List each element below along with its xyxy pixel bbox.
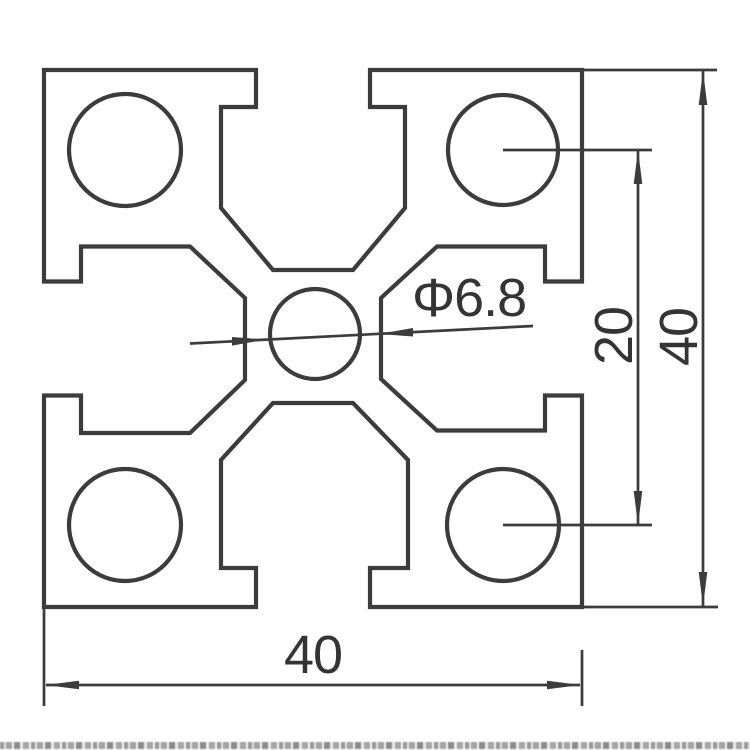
center-bore-hole (270, 289, 360, 379)
arrowhead-width-left (45, 681, 79, 690)
profile-drawing: 40 20 40 Φ6.8 (0, 0, 750, 750)
arrowhead-spacing-top (634, 150, 643, 184)
arrowhead-spacing-bottom (634, 491, 643, 525)
arrowhead-diameter-left (232, 337, 266, 346)
dimension-lines-group (44, 70, 718, 706)
arrowheads-group (45, 71, 707, 689)
arrowhead-width-right (547, 681, 581, 690)
corner-hole-bottom-left (69, 469, 181, 581)
height-dimension-label: 40 (649, 308, 709, 366)
width-dimension-label: 40 (284, 625, 342, 685)
drawing-canvas: 40 20 40 Φ6.8 (0, 0, 750, 750)
cropped-text-strip (0, 742, 750, 749)
arrowhead-height-top (699, 71, 708, 105)
hole-spacing-label: 20 (584, 307, 644, 365)
corner-hole-top-left (69, 94, 181, 206)
labels-group: 40 20 40 Φ6.8 (284, 268, 709, 685)
center-hole-diameter-label: Φ6.8 (412, 268, 526, 328)
arrowhead-height-bottom (699, 572, 708, 606)
